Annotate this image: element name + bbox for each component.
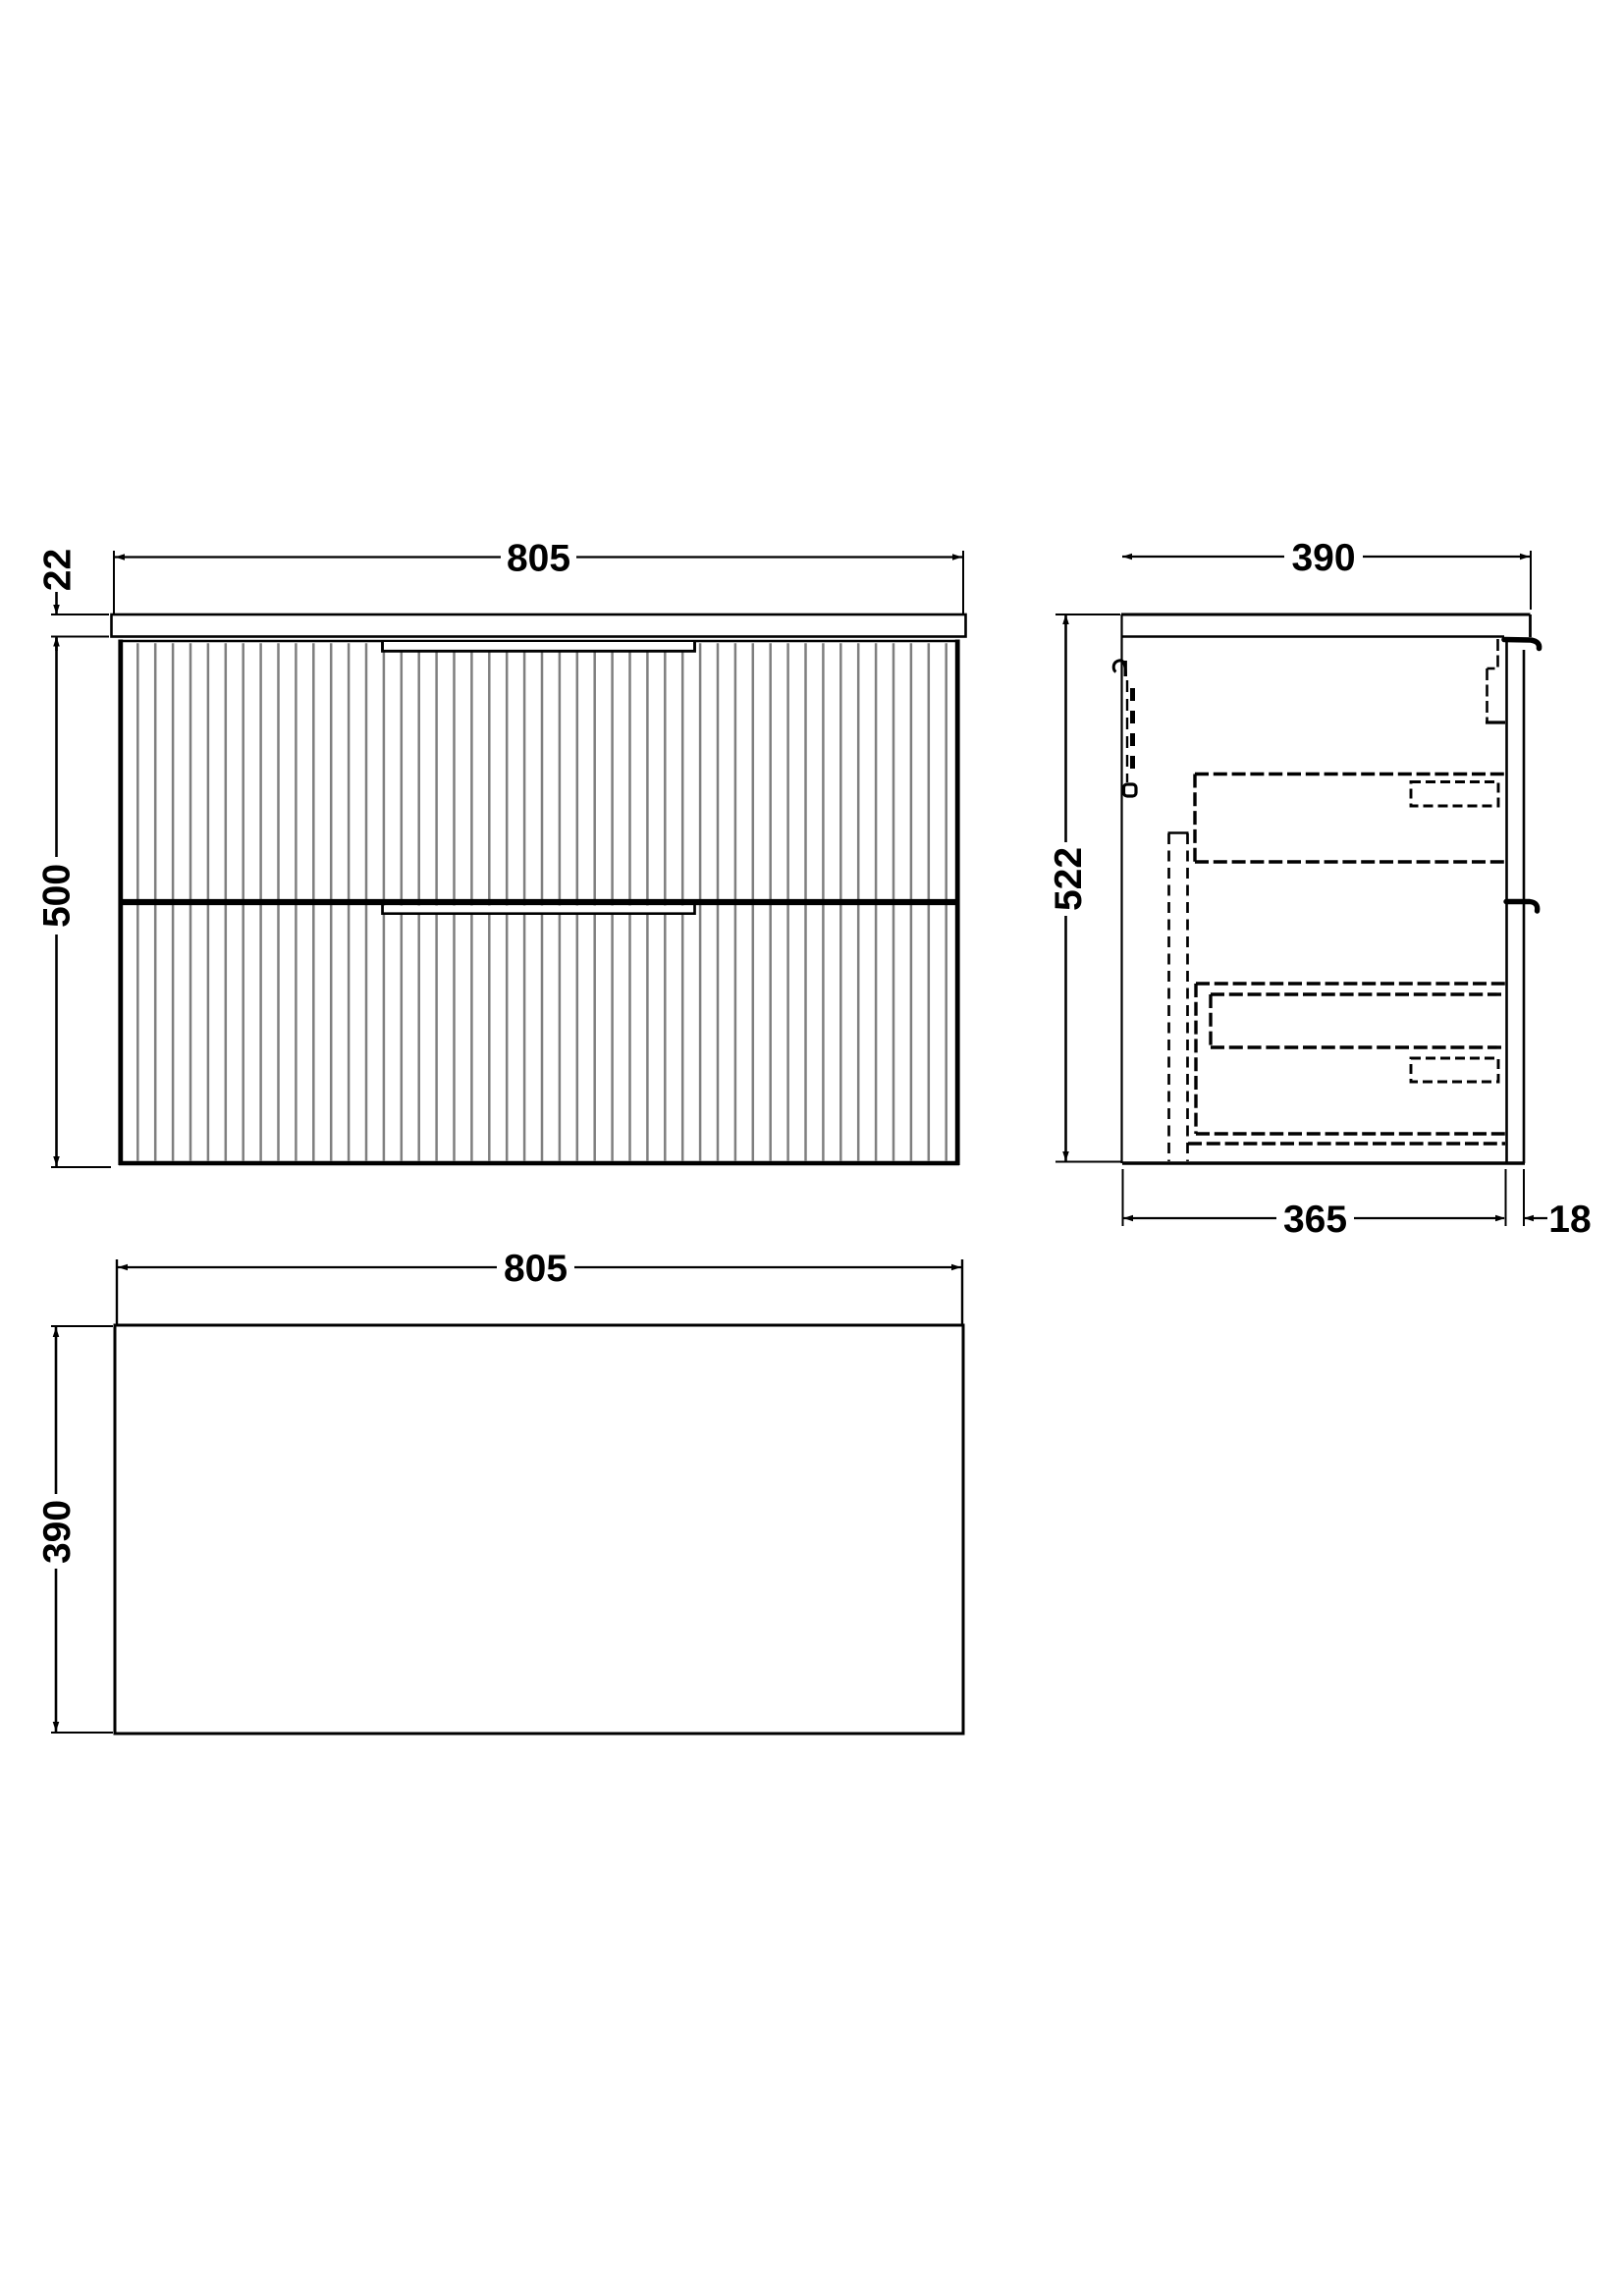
svg-text:390: 390: [36, 1500, 79, 1564]
svg-text:500: 500: [36, 864, 79, 928]
svg-text:22: 22: [37, 549, 80, 591]
svg-text:18: 18: [1548, 1199, 1591, 1241]
svg-text:805: 805: [504, 1248, 568, 1290]
svg-text:522: 522: [1048, 847, 1090, 911]
svg-text:365: 365: [1283, 1199, 1347, 1241]
svg-text:390: 390: [1291, 537, 1355, 579]
svg-text:805: 805: [507, 538, 570, 580]
